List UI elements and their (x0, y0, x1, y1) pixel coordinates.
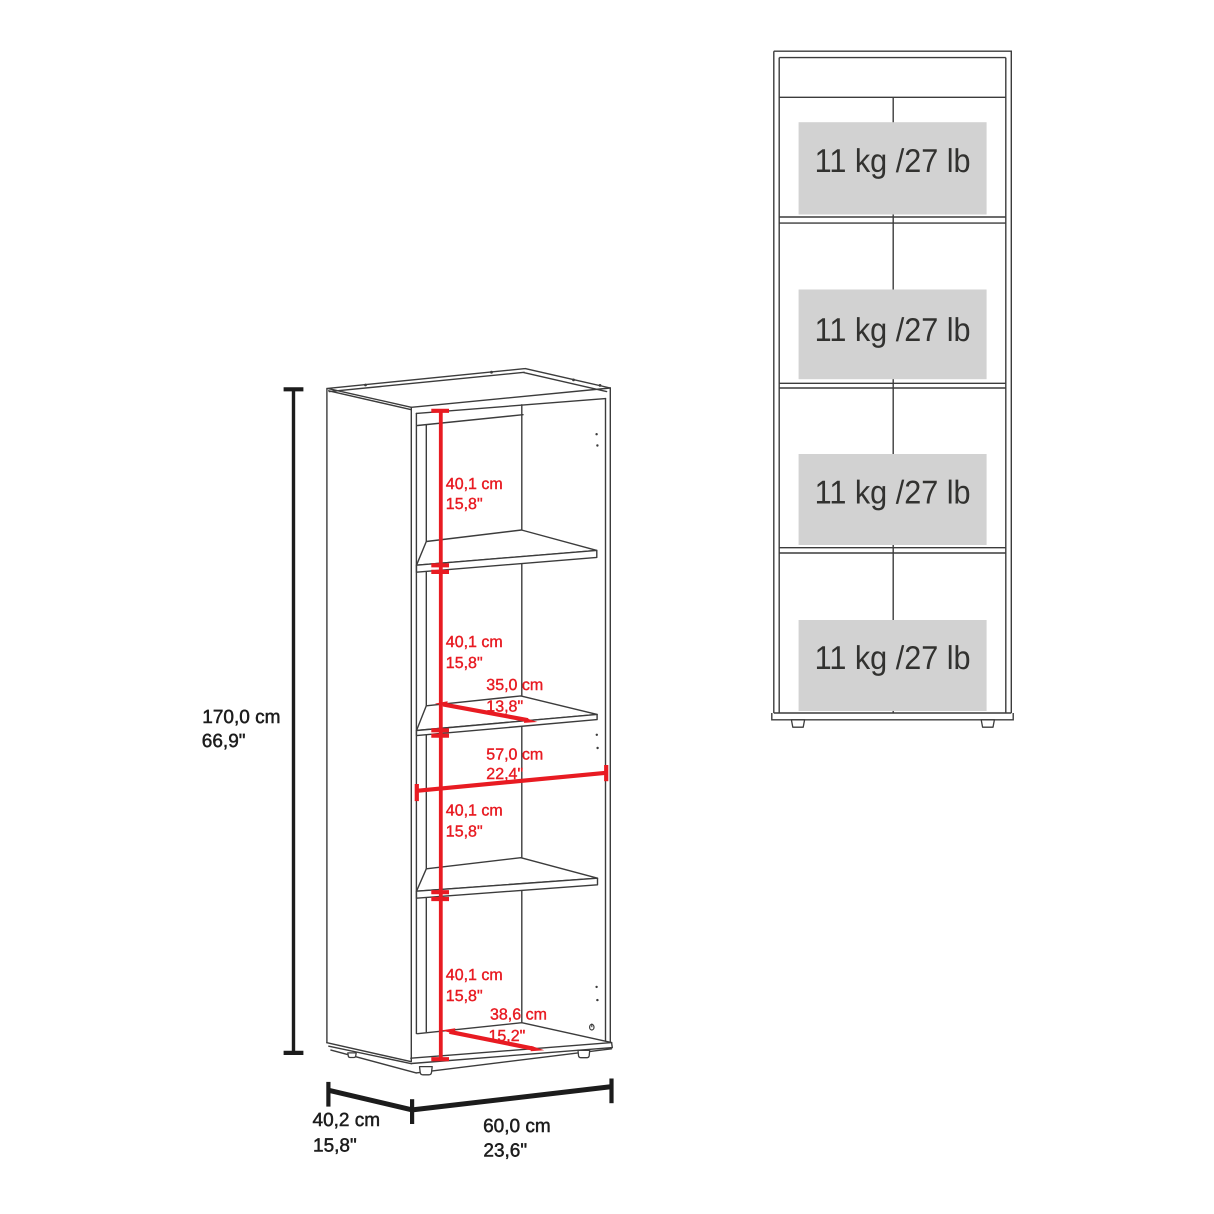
svg-text:11 kg /27 lb: 11 kg /27 lb (815, 311, 971, 348)
svg-text:15,2": 15,2" (489, 1028, 526, 1045)
svg-text:40,1 cm: 40,1 cm (446, 967, 503, 984)
svg-text:23,6": 23,6" (483, 1141, 527, 1162)
svg-text:60,0 cm: 60,0 cm (483, 1116, 551, 1137)
svg-text:35,0 cm: 35,0 cm (486, 677, 543, 694)
svg-text:15,8": 15,8" (313, 1136, 357, 1157)
svg-text:170,0 cm: 170,0 cm (202, 707, 280, 728)
svg-text:57,0 cm: 57,0 cm (486, 747, 543, 764)
svg-text:40,1 cm: 40,1 cm (446, 634, 503, 651)
svg-text:15,8": 15,8" (446, 655, 483, 672)
svg-text:11 kg /27 lb: 11 kg /27 lb (815, 142, 971, 179)
svg-text:11 kg /27 lb: 11 kg /27 lb (815, 474, 971, 511)
svg-text:40,1 cm: 40,1 cm (446, 803, 503, 820)
svg-text:13,8": 13,8" (486, 699, 523, 716)
svg-text:66,9": 66,9" (202, 731, 246, 752)
svg-text:38,6 cm: 38,6 cm (490, 1006, 547, 1023)
svg-text:15,8": 15,8" (446, 496, 483, 513)
svg-text:40,2 cm: 40,2 cm (313, 1110, 381, 1131)
svg-text:15,8": 15,8" (446, 988, 483, 1005)
svg-text:15,8": 15,8" (446, 824, 483, 841)
svg-text:11 kg /27 lb: 11 kg /27 lb (815, 639, 971, 676)
svg-text:40,1 cm: 40,1 cm (446, 476, 503, 493)
svg-text:22,4": 22,4" (486, 766, 523, 783)
